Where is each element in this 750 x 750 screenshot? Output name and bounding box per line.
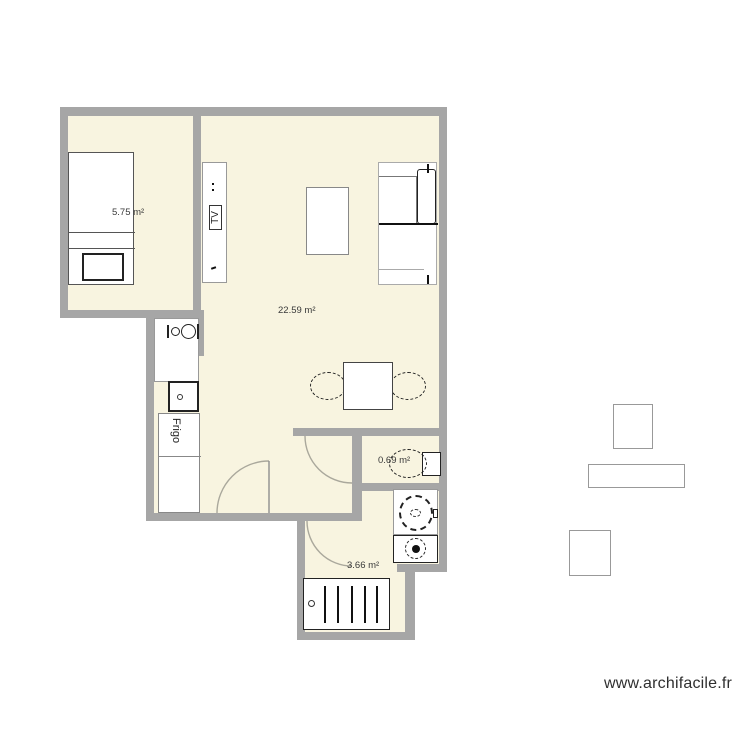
sofa-back-line bbox=[379, 176, 417, 177]
watermark: www.archifacile.fr bbox=[604, 675, 732, 693]
external-box-small-bottom[interactable] bbox=[569, 530, 611, 576]
washing-machine[interactable] bbox=[393, 535, 438, 563]
wall-living-bottom[interactable] bbox=[146, 513, 362, 521]
toilet-bowl bbox=[389, 449, 427, 478]
wall-wc-left[interactable] bbox=[352, 436, 362, 521]
radiator-fin bbox=[376, 586, 378, 623]
wall-kitchen-left[interactable] bbox=[146, 310, 154, 521]
dining-table[interactable] bbox=[343, 362, 393, 410]
wall-right[interactable] bbox=[439, 107, 447, 572]
bed-mattress-line bbox=[69, 232, 135, 233]
bed-sheet-line bbox=[69, 248, 135, 249]
bedroom-area-label: 5.75 m² bbox=[112, 207, 144, 218]
sofa-seat-line bbox=[379, 223, 438, 225]
wall-bathroom-bottom[interactable] bbox=[297, 632, 415, 640]
chair-right[interactable] bbox=[390, 372, 426, 400]
wall-nook-bottom[interactable] bbox=[397, 564, 447, 572]
sofa-armrest-mark bbox=[427, 164, 429, 173]
bed[interactable] bbox=[68, 152, 134, 285]
tv-detail-dot bbox=[212, 189, 214, 191]
sink-icon bbox=[167, 322, 199, 342]
floorplan-canvas: 5.75 m² TV 22.59 m² Frigo bbox=[0, 0, 750, 750]
living-area-label: 22.59 m² bbox=[278, 305, 316, 316]
wall-hall-top[interactable] bbox=[293, 428, 447, 436]
sofa[interactable] bbox=[378, 162, 437, 285]
wall-left[interactable] bbox=[60, 107, 68, 318]
wall-bathroom-right-lower[interactable] bbox=[405, 564, 415, 640]
bathroom-area-label: 3.66 m² bbox=[347, 560, 379, 571]
radiator-fin bbox=[337, 586, 339, 623]
stove[interactable] bbox=[168, 381, 199, 412]
coffee-table[interactable] bbox=[306, 187, 349, 255]
sofa-armrest-mark bbox=[427, 275, 429, 284]
fridge[interactable]: Frigo bbox=[158, 413, 200, 513]
wall-top[interactable] bbox=[60, 107, 447, 116]
fridge-divider bbox=[159, 456, 201, 457]
tv-label: TV bbox=[209, 205, 222, 230]
tv-detail-dot bbox=[212, 183, 214, 185]
tv-stand[interactable]: TV bbox=[202, 162, 227, 283]
sofa-chaise bbox=[417, 169, 436, 224]
radiator-valve-icon bbox=[308, 600, 315, 607]
washbasin[interactable] bbox=[393, 489, 438, 535]
wall-bedroom-separator[interactable] bbox=[193, 107, 201, 318]
radiator-fin bbox=[364, 586, 366, 623]
kitchen-sink-counter[interactable] bbox=[154, 318, 199, 382]
tv-detail-mark bbox=[211, 266, 216, 269]
fridge-label: Frigo bbox=[170, 418, 182, 443]
washing-machine-dot-icon bbox=[412, 545, 420, 553]
stove-burner-icon bbox=[177, 394, 183, 400]
external-box-wide[interactable] bbox=[588, 464, 685, 488]
washbasin-tap-icon bbox=[433, 509, 438, 518]
external-box-small-top[interactable] bbox=[613, 404, 653, 449]
sofa-front-line bbox=[379, 269, 424, 270]
chair-left[interactable] bbox=[310, 372, 346, 400]
bed-pillow bbox=[82, 253, 124, 281]
washbasin-drain-icon bbox=[410, 509, 421, 517]
radiator-fin bbox=[324, 586, 326, 623]
toilet[interactable] bbox=[389, 448, 442, 479]
wall-bedroom-bottom[interactable] bbox=[60, 310, 204, 318]
radiator-fin bbox=[351, 586, 353, 623]
radiator[interactable] bbox=[303, 578, 390, 630]
